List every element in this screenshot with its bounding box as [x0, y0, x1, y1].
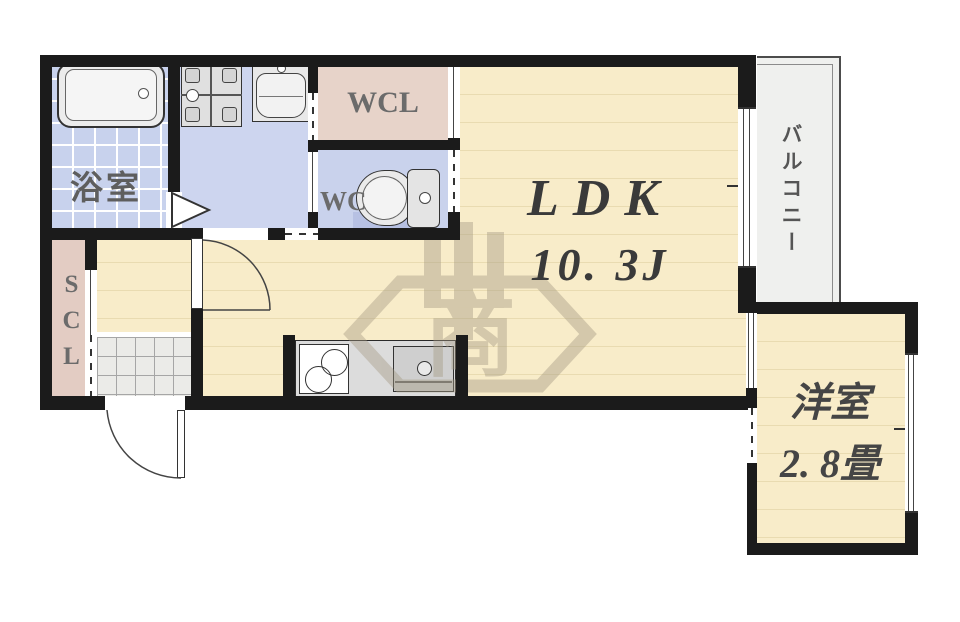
balcony-label: バルコニー: [778, 80, 806, 300]
western-room-label: 洋室: [752, 376, 908, 430]
wc-label: WC: [320, 183, 372, 219]
floor-plan: 商: [0, 0, 960, 622]
scl-label: SCL: [53, 250, 85, 400]
door-symbols: [0, 0, 960, 622]
entry-door-arc: [107, 410, 181, 478]
wcl-label: WCL: [318, 84, 448, 122]
ldk-label: LDK: [470, 168, 730, 230]
washroom-door-arc: [203, 240, 270, 310]
ldk-size-label: 10. 3J: [470, 234, 730, 296]
bath-folding-door: [172, 193, 209, 227]
western-room-size-label: 2. 8畳: [750, 436, 910, 492]
bath-label: 浴室: [50, 167, 162, 211]
